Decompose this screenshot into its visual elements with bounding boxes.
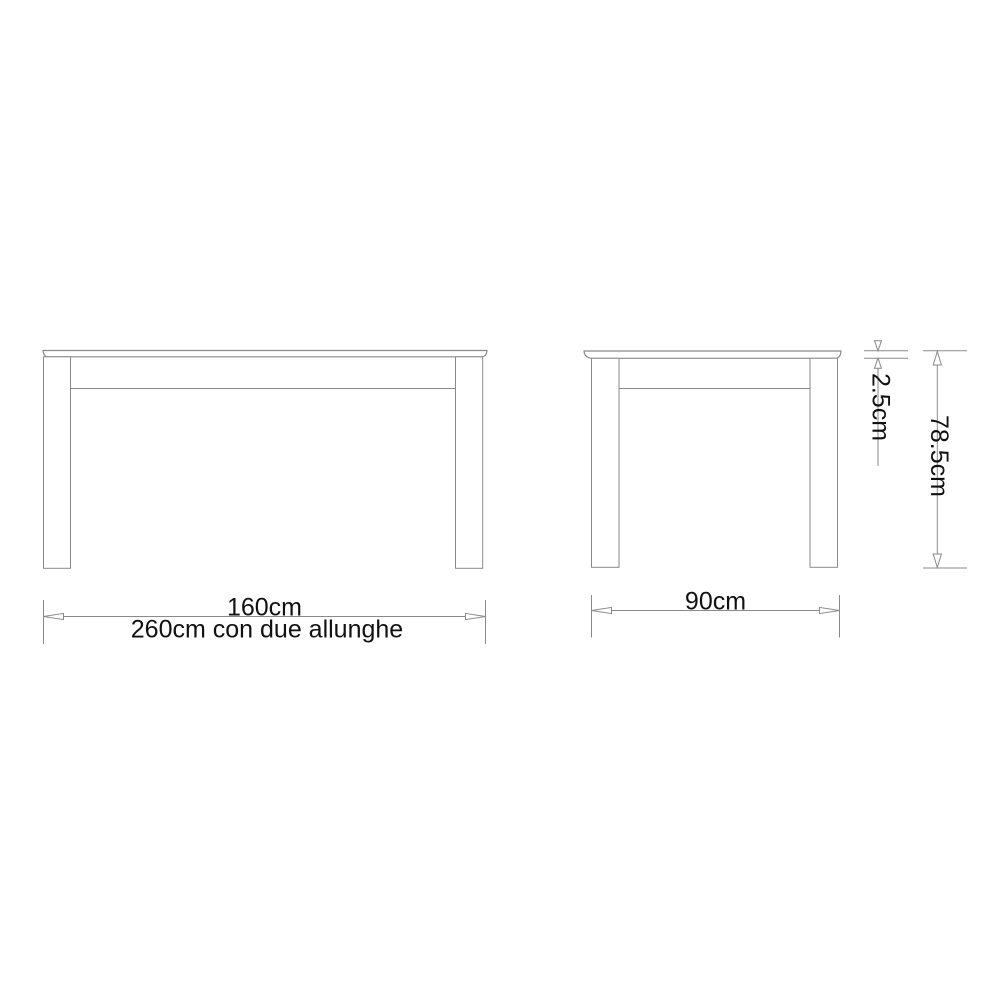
height-label: 78.5cm [925,415,953,497]
side-view-left-leg [592,358,620,567]
side-view-right-leg [810,358,838,567]
depth-label: 90cm [685,588,746,616]
technical-drawing-page: 160cm 260cm con due allunghe 90cm 2.5cm … [0,0,1000,1000]
extended-width-label: 260cm con due allunghe [131,616,403,644]
side-view-tabletop [584,351,841,358]
front-view-tabletop [43,351,487,357]
page-background [0,0,1000,1000]
front-view-right-leg [456,357,483,569]
front-view-left-leg [44,357,71,569]
top-thickness-label: 2.5cm [867,373,895,441]
table-dimension-diagram: 160cm 260cm con due allunghe 90cm 2.5cm … [0,0,1000,1000]
